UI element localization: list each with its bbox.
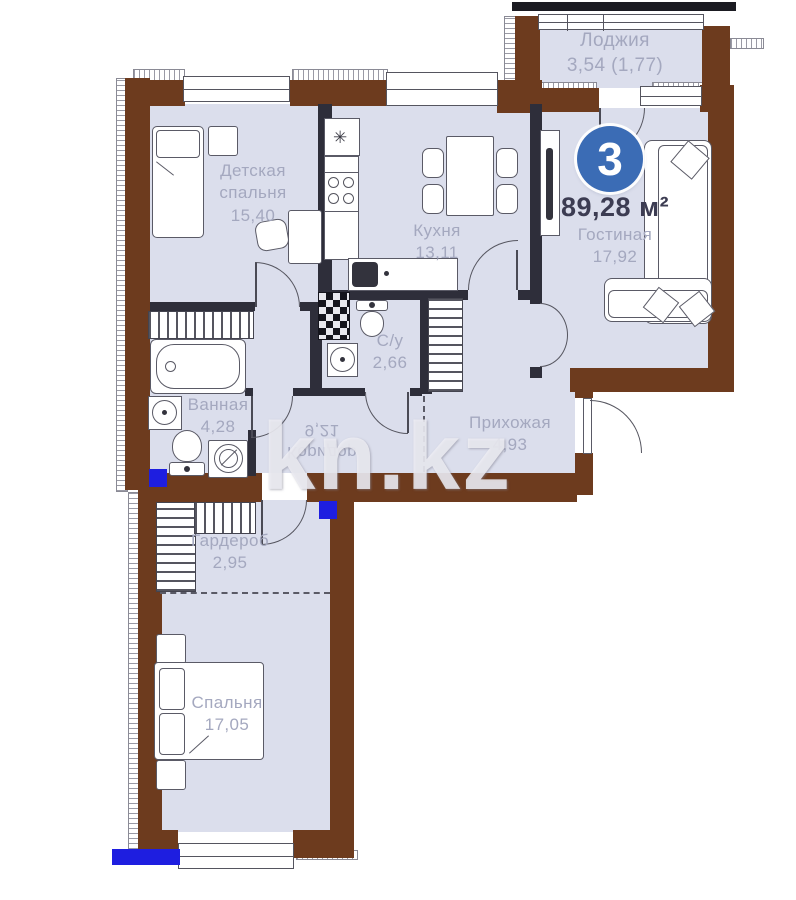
bedroom-area: 17,05 bbox=[178, 714, 276, 736]
wc-label: С/у 2,66 bbox=[352, 330, 428, 375]
kids-bed-pillow bbox=[156, 130, 200, 158]
kitchen-area: 13,11 bbox=[392, 242, 482, 264]
marker-left-wall bbox=[149, 469, 167, 487]
wall-hall-right-upper bbox=[575, 390, 593, 398]
bath-area: 4,28 bbox=[168, 416, 268, 438]
wall-top-b bbox=[290, 80, 388, 106]
dining-chair-2 bbox=[422, 184, 444, 214]
wall-living-top bbox=[503, 88, 599, 112]
kids-name-line1: Детская bbox=[198, 160, 308, 182]
wall-left-upper bbox=[125, 78, 150, 490]
kitchen-sink bbox=[352, 262, 378, 287]
total-area: 89,28 м² bbox=[561, 192, 669, 223]
watermark: kn.kz bbox=[262, 402, 582, 512]
wall-corridor-top-right bbox=[410, 388, 422, 396]
wall-top-a bbox=[125, 80, 185, 106]
wall-loggia-right bbox=[702, 26, 730, 88]
bath-name: Ванная bbox=[168, 394, 268, 416]
vent-shaft bbox=[318, 292, 350, 340]
wall-bedroom-bottom-right bbox=[293, 830, 354, 858]
dining-table bbox=[446, 136, 494, 216]
bath-sink-faucet bbox=[162, 410, 167, 415]
wall-kids-bath-left bbox=[150, 302, 255, 311]
stove-burner-2 bbox=[343, 177, 354, 188]
dining-chair-3 bbox=[496, 148, 518, 178]
loggia-name: Лоджия bbox=[537, 28, 693, 53]
loggia-area: 3,54 (1,77) bbox=[537, 53, 693, 78]
hall-closet bbox=[428, 298, 463, 392]
loggia-living-window bbox=[640, 86, 702, 106]
living-name: Гостиная bbox=[565, 224, 665, 246]
living-area: 17,92 bbox=[565, 246, 665, 268]
bedroom-name: Спальня bbox=[178, 692, 276, 714]
kids-name-line2: спальня bbox=[198, 182, 308, 204]
rooms-number-badge: 3 bbox=[577, 126, 643, 192]
floor-plan: ✳ Лоджия bbox=[0, 0, 796, 900]
entrance-door-arc bbox=[590, 400, 642, 453]
kids-window bbox=[183, 76, 290, 102]
kids-label: Детская спальня 15,40 bbox=[198, 160, 308, 227]
stove-burner-1 bbox=[328, 177, 339, 188]
stove-burner-3 bbox=[328, 193, 339, 204]
living-label: Гостиная 17,92 bbox=[565, 224, 665, 269]
wardrobe-name: Гардероб bbox=[176, 530, 284, 552]
kitchen-window bbox=[386, 72, 498, 106]
kitchen-sink-faucet bbox=[384, 271, 389, 276]
loggia-parapet-line bbox=[512, 2, 736, 11]
wc-name: С/у bbox=[352, 330, 428, 352]
dining-chair-1 bbox=[422, 148, 444, 178]
bedroom-nightstand-1 bbox=[156, 634, 186, 664]
wall-living-bottom bbox=[570, 368, 734, 392]
loggia-label: Лоджия 3,54 (1,77) bbox=[537, 28, 693, 78]
kitchen-label: Кухня 13,11 bbox=[392, 220, 482, 265]
bath-toilet-button bbox=[184, 466, 190, 472]
wc-area: 2,66 bbox=[352, 352, 428, 374]
hatch-loggia-right bbox=[730, 38, 764, 49]
bedroom-window bbox=[178, 843, 294, 869]
bathtub-drain bbox=[165, 361, 176, 372]
stove-burner-4 bbox=[343, 193, 354, 204]
bedroom-nightstand-2 bbox=[156, 760, 186, 790]
wall-living-left-stub bbox=[530, 367, 542, 378]
dining-chair-4 bbox=[496, 184, 518, 214]
kids-area: 15,40 bbox=[198, 205, 308, 227]
kids-nightstand bbox=[208, 126, 238, 156]
rooms-number: 3 bbox=[597, 132, 623, 186]
wardrobe-area: 2,95 bbox=[176, 552, 284, 574]
kitchen-star-icon: ✳ bbox=[333, 128, 347, 148]
wc-sink-faucet bbox=[340, 357, 345, 362]
marker-bottom-left-bar bbox=[112, 849, 180, 865]
wc-toilet-button bbox=[369, 302, 375, 308]
wall-bedroom-right bbox=[330, 500, 354, 858]
wall-corridor-top bbox=[293, 388, 365, 396]
kitchen-name: Кухня bbox=[392, 220, 482, 242]
tv-screen bbox=[546, 148, 553, 220]
bedroom-label: Спальня 17,05 bbox=[178, 692, 276, 737]
wardrobe-bedroom-boundary bbox=[160, 592, 330, 594]
bath-radiator bbox=[148, 311, 254, 339]
total-area-value: 89,28 bbox=[561, 192, 631, 222]
wardrobe-label: Гардероб 2,95 bbox=[176, 530, 284, 575]
bath-label: Ванная 4,28 bbox=[168, 394, 268, 439]
total-area-unit: м² bbox=[639, 192, 669, 222]
